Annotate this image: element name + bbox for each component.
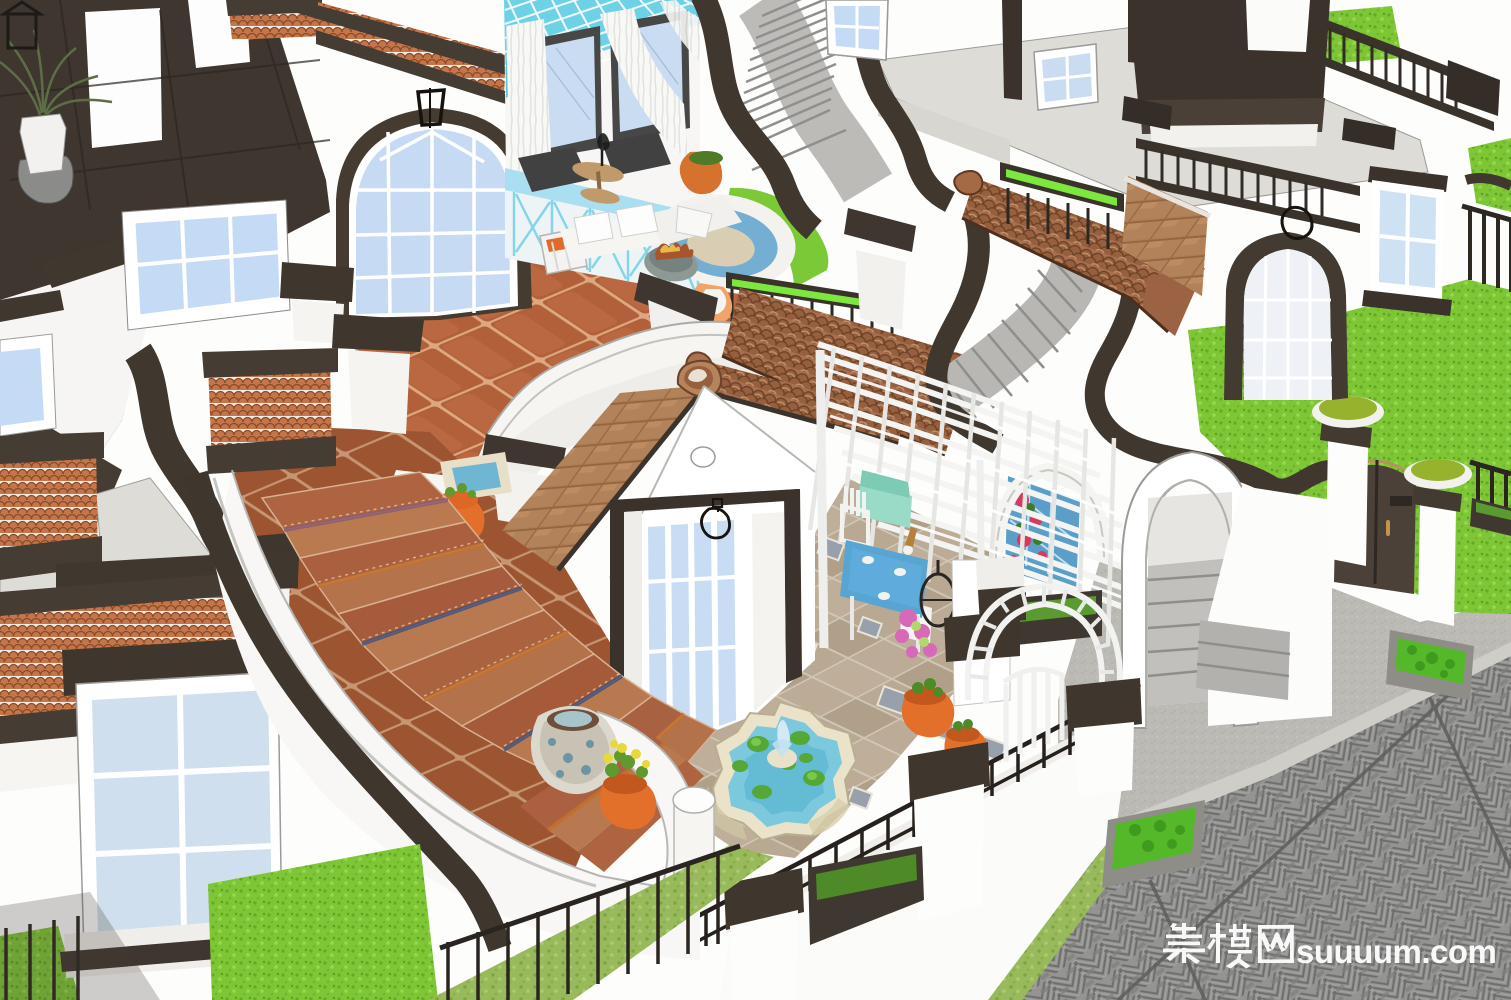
svg-text:suuuum.com: suuuum.com <box>1296 933 1496 970</box>
